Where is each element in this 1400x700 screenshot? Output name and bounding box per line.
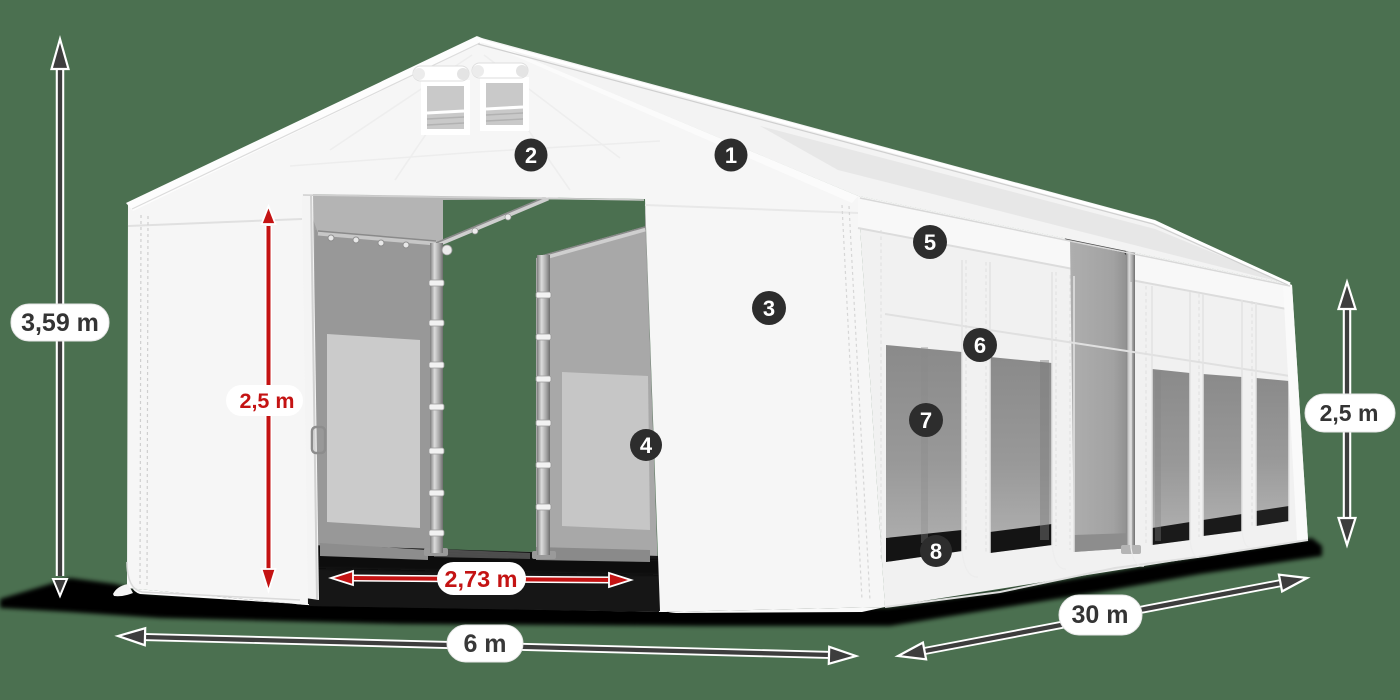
svg-text:2,5 m: 2,5 m	[240, 389, 295, 413]
svg-text:4: 4	[640, 433, 653, 458]
svg-text:8: 8	[930, 539, 942, 564]
svg-text:2,73 m: 2,73 m	[444, 566, 517, 592]
svg-text:2: 2	[525, 143, 537, 168]
svg-text:6: 6	[974, 333, 986, 358]
svg-text:3,59 m: 3,59 m	[21, 309, 99, 337]
svg-text:3: 3	[763, 296, 775, 321]
svg-text:5: 5	[924, 230, 936, 255]
svg-text:30 m: 30 m	[1072, 601, 1129, 629]
svg-text:1: 1	[725, 143, 737, 168]
svg-text:2,5 m: 2,5 m	[1320, 400, 1379, 426]
svg-text:7: 7	[920, 408, 932, 433]
svg-text:6 m: 6 m	[463, 630, 506, 658]
